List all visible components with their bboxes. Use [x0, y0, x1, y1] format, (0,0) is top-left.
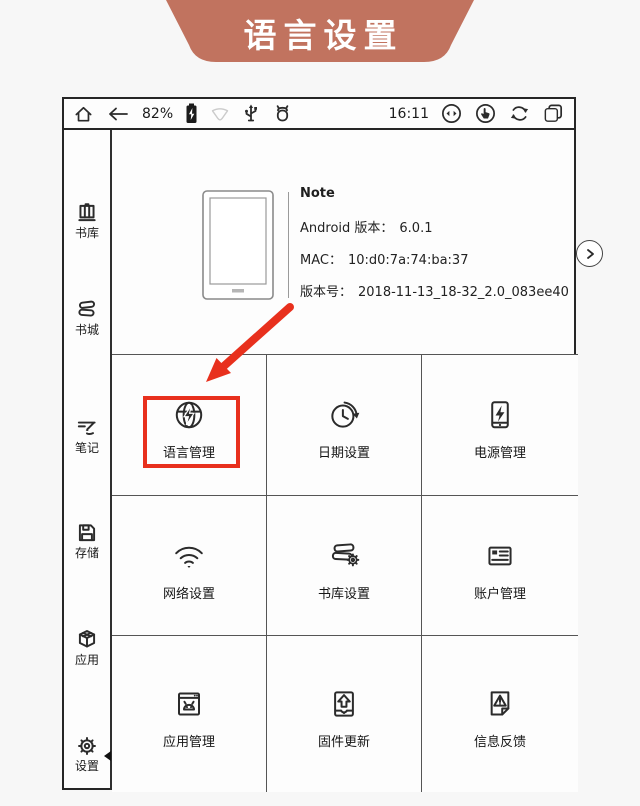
home-icon[interactable]: [73, 104, 94, 124]
sidebar-item-library[interactable]: 书库: [64, 201, 110, 240]
tile-network-settings[interactable]: 网络设置: [112, 496, 267, 636]
storage-icon: [64, 521, 110, 545]
banner: 语言设置: [150, 0, 490, 64]
device-model: Note: [300, 186, 569, 201]
tablet-thumbnail-icon: [202, 190, 274, 300]
touch-hand-icon[interactable]: [474, 102, 497, 125]
battery-percent: 82%: [142, 106, 173, 122]
library-icon: [64, 201, 110, 225]
mac-value: 10:d0:7a:74:ba:37: [348, 253, 469, 268]
recents-icon[interactable]: [542, 102, 565, 125]
sidebar-item-notes[interactable]: 笔记: [64, 416, 110, 455]
ab-contrast-icon[interactable]: [440, 102, 463, 125]
build-label: 版本号：: [300, 285, 352, 300]
sidebar-item-label: 笔记: [64, 442, 110, 455]
tile-label: 固件更新: [318, 731, 370, 750]
tile-label: 日期设置: [318, 442, 370, 461]
device-info-chevron-button[interactable]: [576, 240, 603, 267]
sidebar-item-label: 存储: [64, 547, 110, 560]
sidebar-item-label: 应用: [64, 654, 110, 667]
settings-grid: 语言管理 日期设置 电源管理: [112, 354, 578, 792]
sidebar-item-label: 书城: [64, 324, 110, 337]
apps-icon: [64, 628, 110, 652]
battery-power-icon: [480, 395, 520, 435]
tile-power-management[interactable]: 电源管理: [422, 355, 578, 496]
clock-history-icon: [324, 395, 364, 435]
tile-label: 账户管理: [474, 583, 526, 602]
sidebar-item-storage[interactable]: 存储: [64, 521, 110, 560]
feedback-doc-icon: [480, 684, 520, 724]
info-divider: [288, 192, 289, 298]
mac-label: MAC：: [300, 253, 342, 268]
bookstore-icon: [64, 298, 110, 322]
tile-label: 信息反馈: [474, 731, 526, 750]
wifi-icon: [169, 536, 209, 576]
tile-date-settings[interactable]: 日期设置: [267, 355, 422, 496]
device-screenshot-frame: 82%: [62, 97, 576, 790]
tile-firmware-update[interactable]: 固件更新: [267, 636, 422, 792]
tile-label: 应用管理: [163, 731, 215, 750]
sync-icon[interactable]: [508, 102, 531, 125]
sidebar-item-bookstore[interactable]: 书城: [64, 298, 110, 337]
tile-label: 书库设置: [318, 583, 370, 602]
selected-item-marker: [104, 751, 111, 761]
android-version-label: Android 版本：: [300, 221, 393, 236]
tile-feedback[interactable]: 信息反馈: [422, 636, 578, 792]
sidebar-nav: 书库 书城 笔记: [64, 130, 112, 790]
globe-language-icon: [169, 395, 209, 435]
firmware-upload-icon: [324, 684, 364, 724]
tile-label: 电源管理: [474, 442, 526, 461]
sidebar-item-label: 书库: [64, 227, 110, 240]
tile-app-management[interactable]: 应用管理: [112, 636, 267, 792]
notes-icon: [64, 416, 110, 440]
tile-language-management[interactable]: 语言管理: [112, 355, 267, 496]
sidebar-item-apps[interactable]: 应用: [64, 628, 110, 667]
clock-time: 16:11: [389, 106, 429, 122]
wifi-icon: [210, 106, 230, 121]
page-title: 语言设置: [150, 9, 490, 57]
books-gear-icon: [324, 536, 364, 576]
tile-label: 语言管理: [163, 442, 215, 461]
battery-icon: [185, 103, 198, 124]
android-version-value: 6.0.1: [399, 221, 432, 236]
build-value: 2018-11-13_18-32_2.0_083ee40: [358, 285, 569, 300]
sidebar-item-label: 设置: [64, 760, 110, 773]
tile-account-management[interactable]: 账户管理: [422, 496, 578, 636]
tile-label: 网络设置: [163, 583, 215, 602]
usb-icon: [242, 103, 260, 124]
android-window-icon: [169, 684, 209, 724]
tile-library-settings[interactable]: 书库设置: [267, 496, 422, 636]
back-arrow-icon[interactable]: [106, 106, 130, 122]
device-info-panel[interactable]: Note Android 版本：6.0.1 MAC：10:d0:7a:74:ba…: [112, 130, 578, 354]
status-bar: 82%: [64, 99, 574, 130]
id-card-icon: [480, 536, 520, 576]
android-icon: [272, 104, 293, 123]
